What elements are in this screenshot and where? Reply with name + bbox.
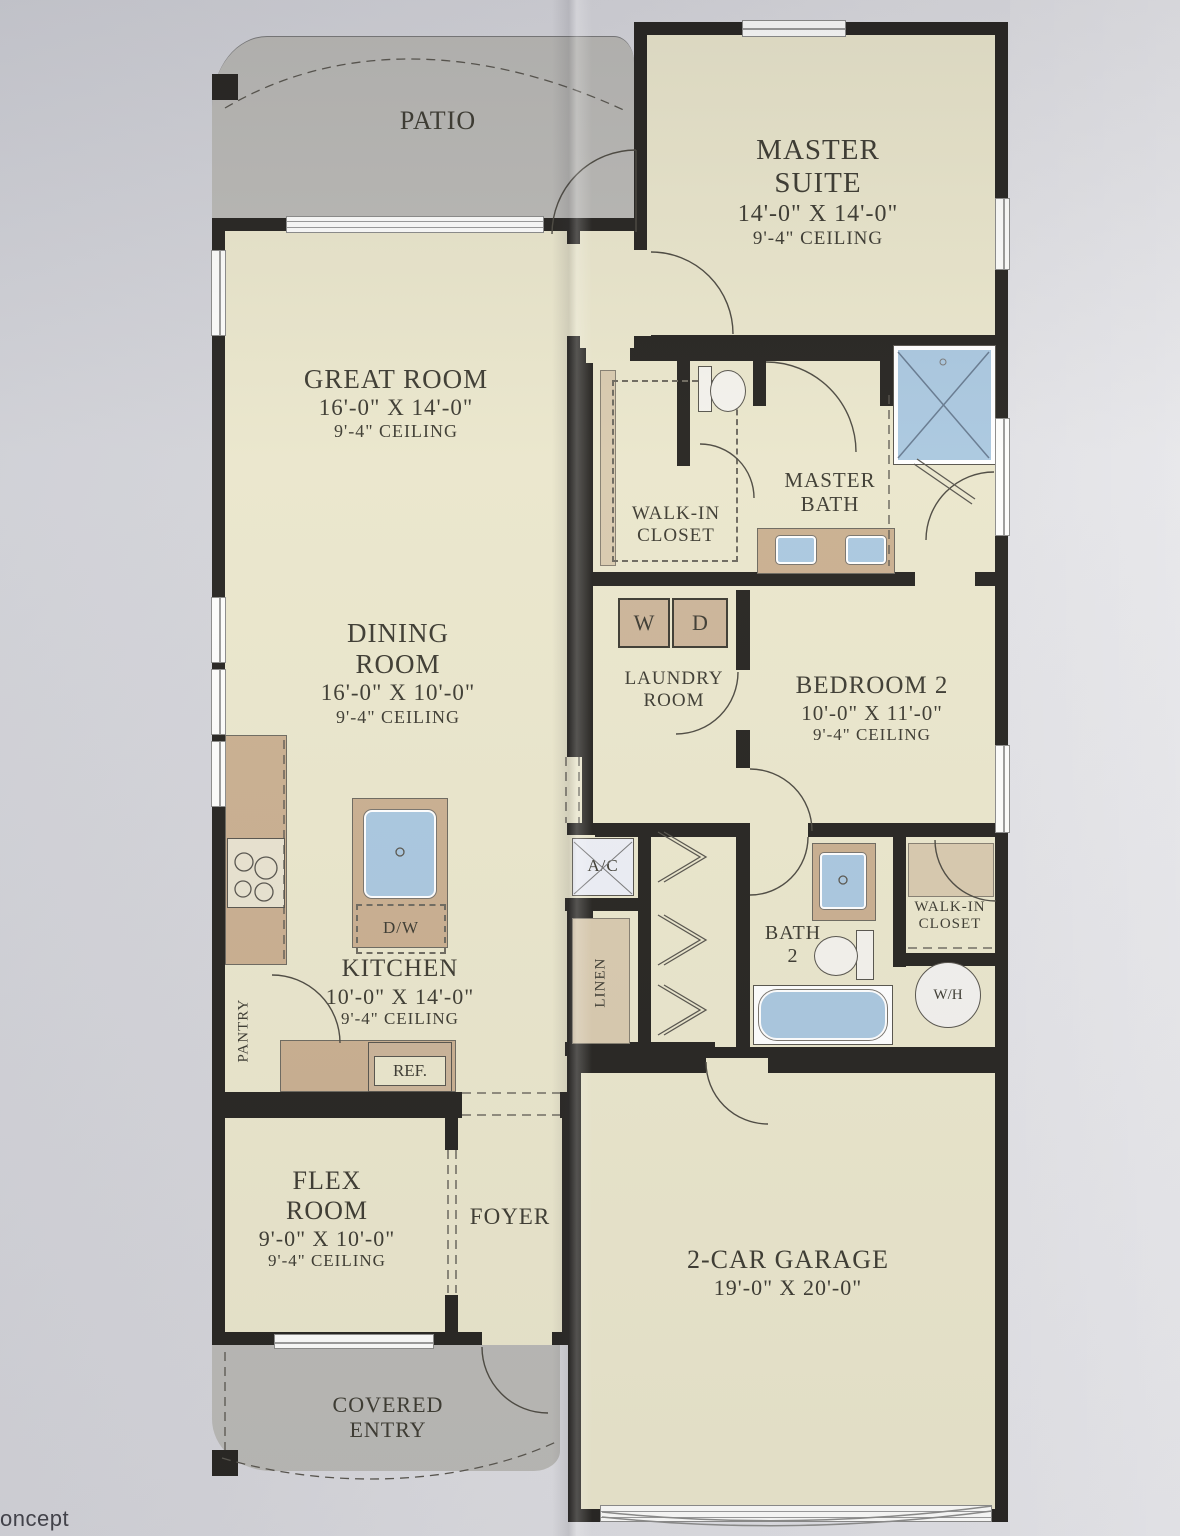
window (211, 250, 226, 336)
opening (915, 572, 975, 586)
bath-2-label: BATH 2 (753, 922, 833, 968)
window (274, 1334, 434, 1349)
window (211, 597, 226, 663)
wall-segment (578, 218, 638, 231)
great-room-label: GREAT ROOM 16'-0" X 14'-0" 9'-4" CEILING (246, 364, 546, 442)
walk-in-closet-2-label: WALK-IN CLOSET (906, 899, 994, 934)
window (211, 669, 226, 735)
toilet-bowl (710, 370, 746, 412)
window (995, 418, 1010, 536)
wall-segment (736, 837, 750, 1060)
window (211, 741, 226, 807)
window (742, 20, 846, 37)
opening (462, 1090, 560, 1118)
refrigerator-label: REF. (393, 1061, 427, 1081)
refrigerator-label-box: REF. (374, 1056, 446, 1086)
dryer-label: D (692, 610, 708, 636)
foyer-label: FOYER (455, 1204, 565, 1230)
opening (565, 757, 582, 823)
stove (227, 838, 285, 908)
washer: W (618, 598, 670, 648)
master-suite-label: MASTER SUITE 14'-0" X 14'-0" 9'-4" CEILI… (688, 134, 948, 250)
window (995, 745, 1010, 833)
garage-label: 2-CAR GARAGE 19'-0" X 20'-0" (658, 1245, 918, 1300)
island-sink (364, 810, 436, 898)
toilet-tank (856, 930, 874, 980)
bathtub (759, 990, 887, 1040)
sliding-glass-door (286, 216, 544, 233)
pantry-label: PANTRY (235, 971, 252, 1091)
wall-segment (565, 898, 651, 911)
flex-room-label: FLEX ROOM 9'-0" X 10'-0" 9'-4" CEILING (227, 1166, 427, 1271)
dishwasher-label: D/W (361, 918, 441, 938)
sink (846, 536, 886, 564)
wall-segment (565, 1042, 715, 1056)
page-light-edge (1010, 0, 1180, 1536)
water-heater-circle: W/H (915, 962, 981, 1028)
washer-label: W (634, 610, 655, 636)
master-bath-label: MASTER BATH (750, 468, 910, 516)
covered-entry-label: COVERED ENTRY (288, 1392, 488, 1443)
wall-segment (880, 348, 893, 406)
linen-label: LINEN (592, 923, 609, 1043)
wall-segment (893, 837, 906, 967)
opening (750, 823, 808, 837)
wall-segment (753, 348, 766, 406)
wall-segment (638, 911, 651, 1050)
opening (631, 250, 651, 336)
garage-door (600, 1505, 992, 1522)
shower-pan (898, 350, 991, 460)
dining-room-label: DINING ROOM 16'-0" X 10'-0" 9'-4" CEILIN… (258, 618, 538, 727)
opening (565, 244, 583, 336)
page-annotation-text: oncept (0, 1506, 69, 1532)
patio-label: PATIO (338, 106, 538, 136)
opening (586, 346, 630, 363)
vestibule (580, 231, 634, 348)
bedroom-2-label: BEDROOM 2 10'-0" X 11'-0" 9'-4" CEILING (742, 672, 1002, 744)
closet-shelf (908, 843, 994, 897)
ac-label: A/C (563, 856, 643, 876)
water-heater-label: W/H (933, 987, 962, 1004)
wall-segment (736, 590, 750, 670)
laundry-room-label: LAUNDRY ROOM (604, 668, 744, 712)
dryer: D (672, 598, 728, 648)
master-walk-in-closet-label: WALK-IN CLOSET (606, 503, 746, 547)
kitchen-label: KITCHEN 10'-0" X 14'-0" 9'-4" CEILING (250, 955, 550, 1029)
sink (820, 853, 866, 909)
window (995, 198, 1010, 270)
wall-segment (212, 74, 238, 100)
opening (706, 1058, 768, 1074)
opening (482, 1332, 552, 1345)
wall-segment (212, 1450, 238, 1476)
floor-plan-photo: W D W/H REF. PATIO MASTER SUITE 14'-0" X… (0, 0, 1180, 1536)
sink (776, 536, 816, 564)
